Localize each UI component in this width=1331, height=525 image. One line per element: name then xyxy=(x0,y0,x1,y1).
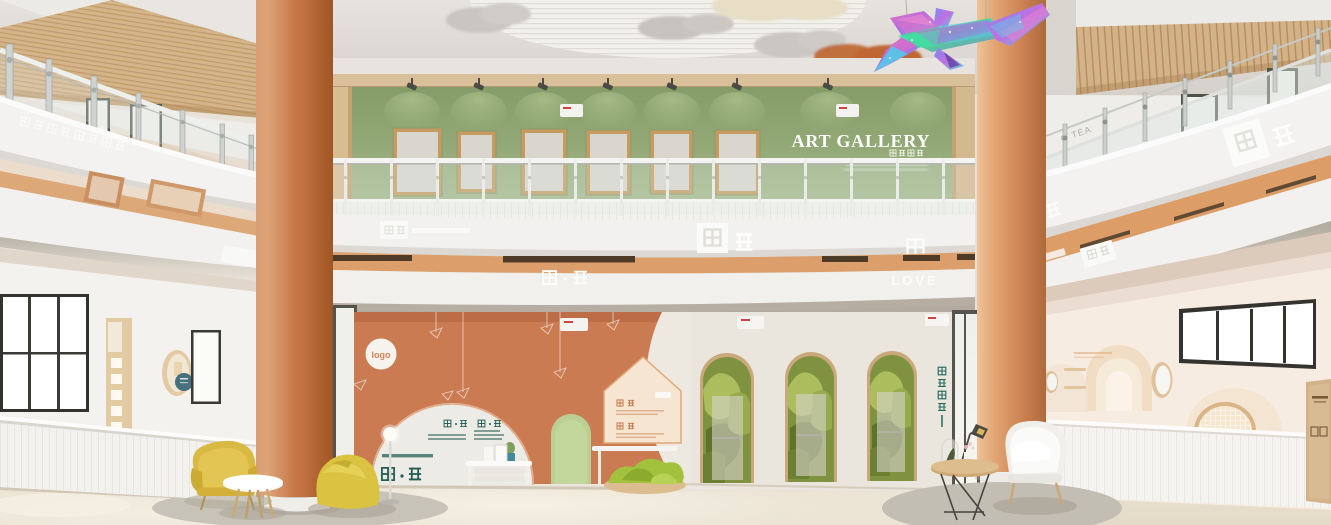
svg-text:logo: logo xyxy=(372,350,391,360)
svg-text:ART GALLERY: ART GALLERY xyxy=(792,131,931,151)
svg-text:LOVE: LOVE xyxy=(891,273,938,288)
